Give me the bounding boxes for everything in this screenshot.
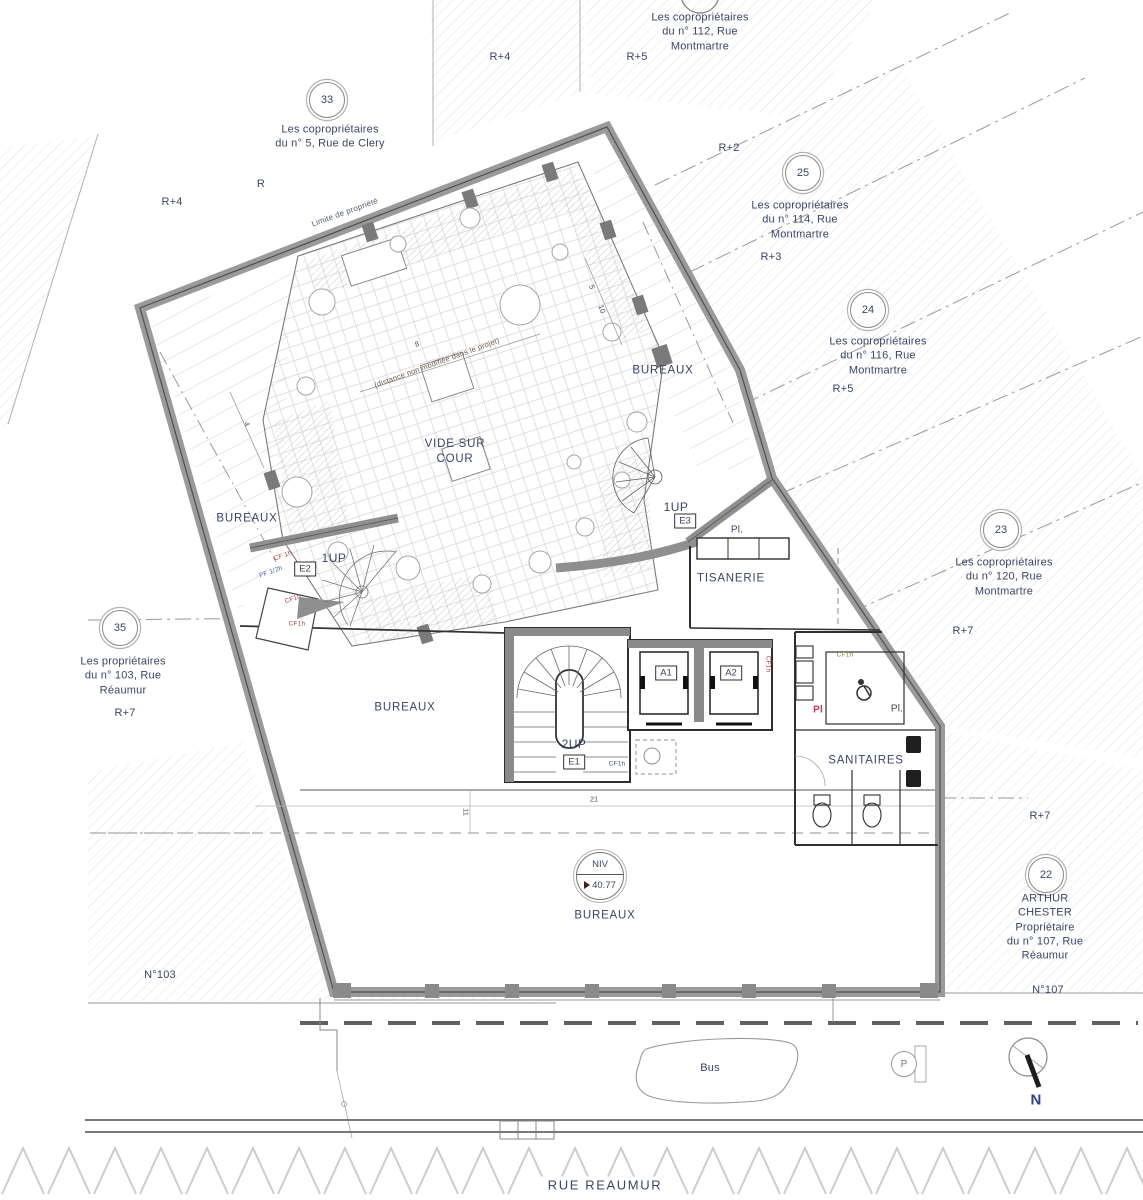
level-label-left-r7: R+7 (114, 706, 135, 720)
level-label-right-r5: R+5 (832, 382, 853, 396)
level-label-top-r5: R+5 (626, 50, 647, 64)
parcel-badge-23-number: 23 (995, 524, 1007, 536)
dimension-11: 11 (462, 808, 471, 816)
parcel-badge-23: 23 (983, 512, 1019, 548)
level-label-bottom-r7: R+7 (1029, 809, 1050, 823)
owner-label-35: Les propriétaires du n° 103, Rue Réaumur (80, 655, 165, 698)
parcel-badge-25: 25 (785, 155, 821, 191)
stair-tag-e3: E3 (674, 514, 696, 529)
north-arrow-icon (1009, 1038, 1047, 1087)
owner-label-33: Les copropriétaires du n° 5, Rue de Cler… (275, 123, 385, 152)
parking-badge: P (891, 1051, 917, 1077)
bus-zone-label: Bus (700, 1061, 720, 1075)
address-label-107: N°107 (1032, 983, 1064, 997)
fire-rating-cf1h-elev: CF1h (765, 656, 772, 673)
parking-label: P (901, 1059, 908, 1070)
room-label-bureaux-west: BUREAUX (216, 512, 277, 527)
elevator-tag-a2: A2 (720, 666, 742, 681)
placard-label-sanitaires: Pl. (891, 703, 903, 716)
stair-label-2up: 2UP (562, 737, 587, 751)
level-label-right-r7: R+7 (952, 624, 973, 638)
stair-label-1up-west: 1UP (322, 551, 347, 565)
room-label-tisanerie: TISANERIE (697, 572, 765, 587)
north-label: N (1030, 1090, 1041, 1110)
parcel-badge-35-number: 35 (114, 622, 126, 634)
room-label-bureaux-ne: BUREAUX (632, 364, 693, 379)
stair-label-1up-east: 1UP (664, 500, 689, 514)
parcel-badge-22-number: 22 (1040, 869, 1052, 881)
owner-label-23: Les copropriétaires du n° 120, Rue Montm… (955, 556, 1052, 599)
parcel-badge-24: 24 (850, 292, 886, 328)
elevator-car-a1 (640, 652, 688, 714)
room-label-vide-sur-cour: VIDE SUR COUR (425, 437, 486, 467)
level-label-left-r4: R+4 (161, 195, 182, 209)
stair-tag-e1: E1 (563, 755, 585, 770)
owner-label-25: Les copropriétaires du n° 114, Rue Montm… (751, 199, 848, 242)
level-marker-value: 40.77 (592, 880, 616, 891)
room-label-sanitaires: SANITAIRES (828, 754, 904, 769)
room-label-bureaux-south: BUREAUX (574, 909, 635, 924)
placard-label-red: Pl (813, 704, 823, 717)
level-label-r3: R+3 (760, 250, 781, 264)
level-label-left-r: R (257, 177, 265, 191)
level-marker-badge: NIV 40.77 (576, 852, 624, 900)
owner-label-112: Les copropriétaires du n° 112, Rue Montm… (651, 11, 748, 54)
placard-label-tisanerie: Pl. (731, 524, 743, 537)
parcel-badge-24-number: 24 (862, 304, 874, 316)
elevator-tag-a1: A1 (655, 666, 677, 681)
level-label-r2: R+2 (718, 141, 739, 155)
level-marker-label: NIV (577, 853, 623, 875)
parcel-badge-22: 22 (1028, 857, 1064, 893)
owner-label-22: ARTHUR CHESTER Propriétaire du n° 107, R… (996, 891, 1094, 962)
owner-label-24: Les copropriétaires du n° 116, Rue Montm… (829, 335, 926, 378)
address-label-103: N°103 (144, 968, 176, 982)
level-marker-icon (584, 881, 590, 889)
fire-rating-cf1h-e2c: CF1h (289, 621, 306, 628)
floor-plan-drawing (0, 0, 1143, 1200)
fire-rating-cf1h-e1: CF1h (609, 761, 626, 768)
parcel-badge-33: 33 (309, 82, 345, 118)
parcel-badge-33-number: 33 (321, 94, 333, 106)
fire-rating-cf1h-san: CF1h (837, 652, 854, 659)
elevator-car-a2 (710, 652, 758, 714)
sidewalk-and-street (0, 993, 1143, 1200)
bus-shelter (500, 1121, 554, 1139)
dimension-21: 21 (590, 795, 598, 804)
floor-plan-page: Les copropriétaires du n° 112, Rue Montm… (0, 0, 1143, 1200)
parcel-badge-25-number: 25 (797, 167, 809, 179)
parcel-badge-35: 35 (102, 610, 138, 646)
level-label-top-r4: R+4 (489, 50, 510, 64)
room-label-bureaux-center: BUREAUX (374, 701, 435, 716)
stair-tag-e2: E2 (294, 562, 316, 577)
street-name-label: RUE REAUMUR (538, 1177, 672, 1196)
